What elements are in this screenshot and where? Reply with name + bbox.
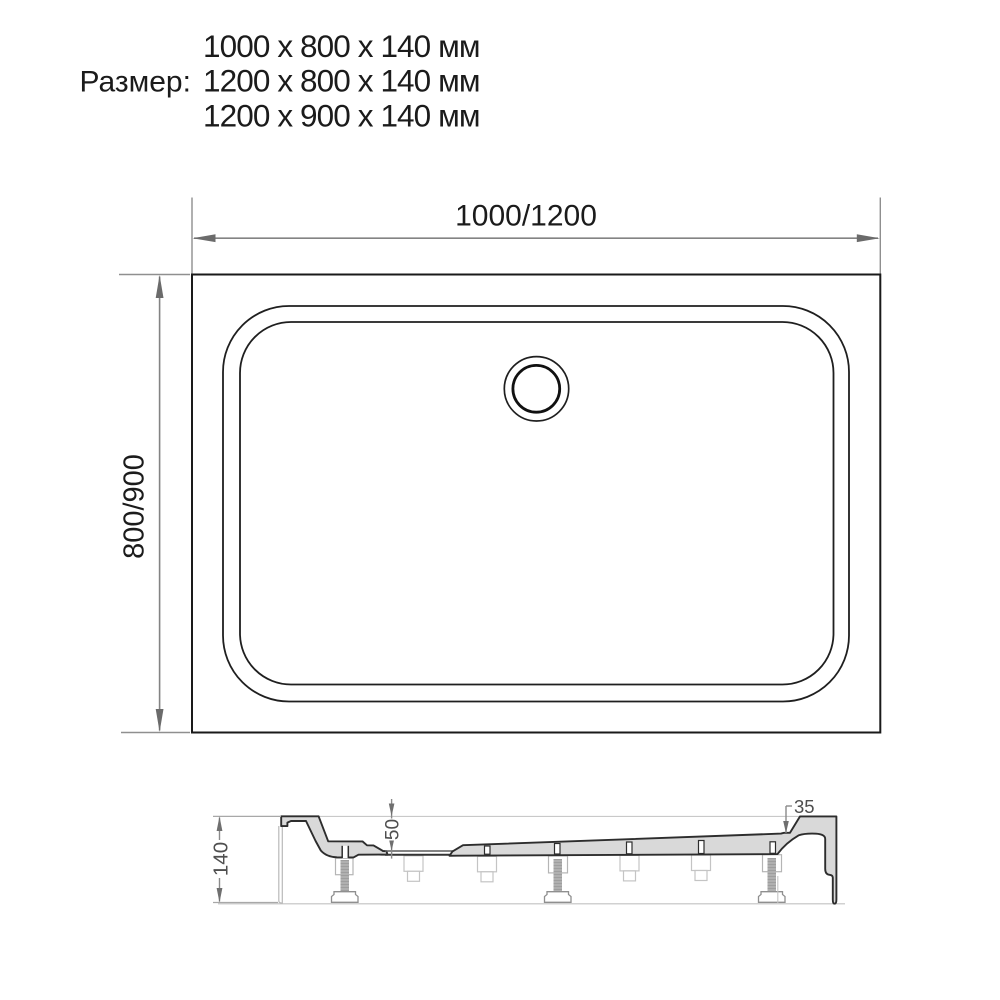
svg-text:1000/1200: 1000/1200 xyxy=(455,200,597,233)
svg-text:140: 140 xyxy=(209,842,232,876)
svg-text:Размер:: Размер: xyxy=(80,66,191,99)
svg-text:800/900: 800/900 xyxy=(119,454,151,559)
svg-text:50: 50 xyxy=(383,819,404,840)
svg-text:1200 x 900 x 140 мм: 1200 x 900 x 140 мм xyxy=(203,98,480,134)
svg-text:1000 x 800 x 140 мм: 1000 x 800 x 140 мм xyxy=(203,28,480,64)
svg-text:35: 35 xyxy=(794,796,815,817)
svg-text:1200 x 800 x 140 мм: 1200 x 800 x 140 мм xyxy=(203,63,480,99)
